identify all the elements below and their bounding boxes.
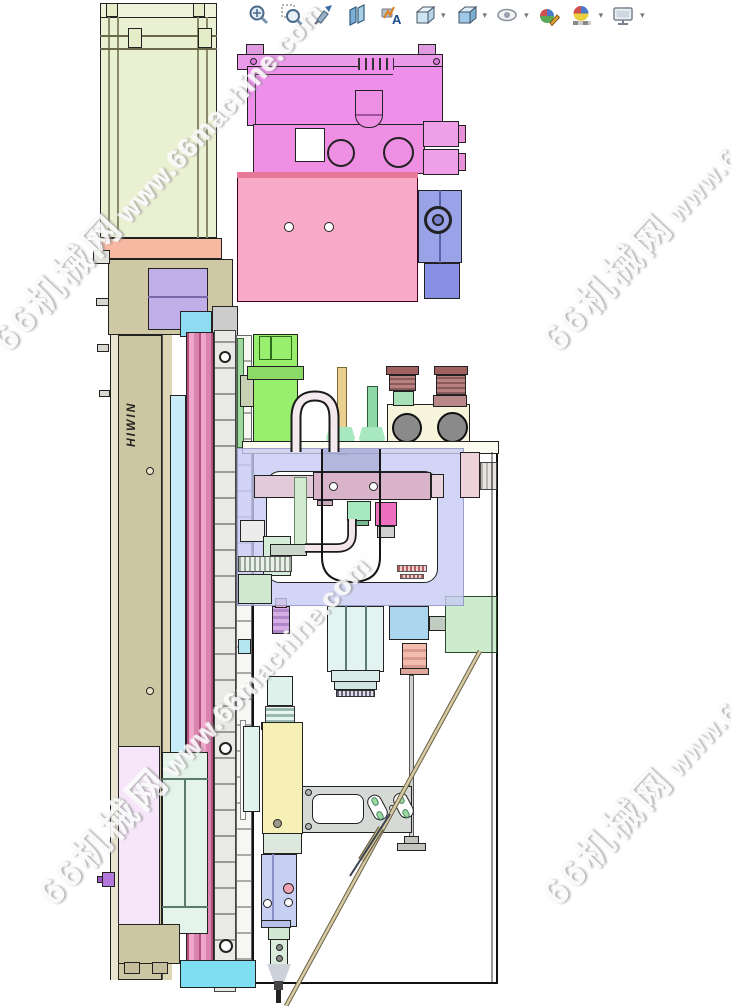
edit-appearance-icon[interactable] bbox=[536, 2, 562, 28]
slide-hole bbox=[284, 898, 293, 907]
hide-show-items-dropdown-caret[interactable]: ▾ bbox=[524, 2, 529, 28]
cyan-actuator-cylinder[interactable] bbox=[327, 606, 384, 672]
manifold-bore bbox=[437, 412, 468, 443]
base-foot bbox=[152, 962, 168, 974]
plate-hole bbox=[284, 222, 294, 232]
chain-pin-hole bbox=[219, 742, 232, 755]
cad-application-window: A ▾ ▾ ▾ ▾ ▾ bbox=[0, 0, 731, 1006]
cyan-cyl-hatch bbox=[336, 690, 375, 697]
bracket-pin-hole bbox=[389, 805, 395, 811]
brown-fitting-cap[interactable] bbox=[386, 366, 419, 375]
section-view-icon[interactable] bbox=[345, 2, 371, 28]
motor-edge-line bbox=[206, 17, 208, 238]
view-settings-icon[interactable] bbox=[610, 2, 636, 28]
brown-fitting-cap[interactable] bbox=[434, 366, 468, 375]
selection-dark-band bbox=[322, 449, 381, 473]
cable-chain-strip[interactable] bbox=[214, 330, 236, 992]
syringe-cap-split bbox=[259, 336, 292, 360]
violet-screw bbox=[433, 58, 440, 65]
slide-pink-plug bbox=[283, 883, 294, 894]
motor-cap-notch bbox=[193, 3, 205, 17]
rail-cyan-strip[interactable] bbox=[170, 395, 186, 765]
rail-bolt bbox=[146, 687, 154, 695]
salmon-fitting[interactable] bbox=[402, 643, 427, 669]
manifold-hole bbox=[369, 482, 378, 491]
display-style-dropdown-caret[interactable]: ▾ bbox=[483, 2, 488, 28]
motor-flange-plate[interactable] bbox=[100, 238, 222, 259]
label-hatch-red bbox=[400, 574, 424, 579]
coupling-step-line bbox=[148, 296, 208, 298]
display-style-icon[interactable] bbox=[453, 2, 479, 28]
valve-knob-inner bbox=[432, 214, 444, 226]
base-foot bbox=[124, 962, 140, 974]
inner-magenta-fitting[interactable] bbox=[375, 502, 397, 526]
left-stub bbox=[99, 390, 110, 397]
blue-valve-bracket[interactable] bbox=[424, 263, 460, 299]
plate-hole bbox=[324, 222, 334, 232]
rail-bolt bbox=[146, 467, 154, 475]
view-orientation-dropdown-caret[interactable]: ▾ bbox=[441, 2, 446, 28]
left-green-block2 bbox=[238, 574, 272, 604]
motor-edge-line bbox=[197, 17, 199, 238]
heads-up-view-toolbar: A ▾ ▾ ▾ ▾ ▾ bbox=[246, 1, 645, 29]
left-stub bbox=[97, 344, 109, 352]
pink-side-cylinder-ribs bbox=[480, 462, 497, 490]
bottom-cyan-block[interactable] bbox=[180, 960, 256, 988]
bracket-cutout bbox=[312, 794, 364, 824]
label-hatch-red bbox=[397, 565, 427, 572]
left-gray-block bbox=[240, 520, 265, 542]
mauve-manifold-ext bbox=[431, 474, 444, 498]
adjust-knob-purple[interactable] bbox=[102, 872, 115, 887]
pink-mount-plate[interactable] bbox=[237, 172, 418, 302]
carriage-green-line bbox=[162, 906, 208, 908]
carriage-green-line bbox=[184, 778, 186, 906]
salmon-washer bbox=[400, 668, 429, 675]
base-tan-block[interactable] bbox=[118, 924, 180, 964]
blue-square-block[interactable] bbox=[389, 606, 429, 640]
violet-bore bbox=[383, 137, 414, 168]
motor-edge-line bbox=[108, 17, 110, 238]
violet-side-fitting[interactable] bbox=[423, 121, 459, 147]
previous-view-icon[interactable] bbox=[312, 2, 338, 28]
violet-bore bbox=[327, 139, 355, 167]
motor-band-line bbox=[100, 48, 217, 50]
violet-cylinder-port[interactable] bbox=[355, 90, 383, 128]
fitting-end-cap bbox=[458, 125, 466, 143]
view-orientation-icon[interactable] bbox=[411, 2, 437, 28]
view-settings-dropdown-caret[interactable]: ▾ bbox=[640, 2, 645, 28]
cyan-side-slab[interactable] bbox=[243, 726, 260, 812]
green-collar bbox=[393, 391, 414, 406]
hide-show-items-icon[interactable] bbox=[494, 2, 520, 28]
cyan-threaded-top[interactable] bbox=[267, 676, 293, 706]
yellow-dispense-valve[interactable] bbox=[262, 722, 303, 834]
pink-plate-top-strip bbox=[237, 172, 418, 178]
cyan-cyl-collar bbox=[334, 681, 377, 690]
motor-bolt-tab bbox=[198, 28, 212, 48]
bracket-screw bbox=[305, 789, 312, 796]
slide-vline bbox=[272, 854, 274, 927]
chain-pin-hole bbox=[219, 939, 233, 953]
inner-green-fitting[interactable] bbox=[347, 501, 371, 521]
nozzle-needle bbox=[276, 990, 281, 1003]
inner-gray-cap bbox=[377, 526, 395, 538]
nozzle-tip bbox=[274, 981, 283, 990]
cyl-vline bbox=[345, 606, 347, 672]
syringe-cap-line bbox=[270, 336, 272, 360]
motor-cap-notch bbox=[106, 3, 118, 17]
left-stub bbox=[93, 250, 110, 264]
apply-scene-dropdown-caret[interactable]: ▾ bbox=[599, 2, 604, 28]
small-cyan-tab bbox=[238, 639, 251, 654]
motor-edge-line bbox=[117, 17, 119, 238]
slide-top-cap bbox=[263, 833, 302, 854]
probe-foot bbox=[397, 843, 426, 851]
bracket-screw bbox=[305, 823, 312, 830]
brown-hex-base bbox=[433, 395, 467, 407]
motor-bolt-tab bbox=[128, 28, 142, 48]
purple-fitting-stack[interactable] bbox=[272, 606, 290, 634]
linear-bearing-hatch bbox=[238, 556, 292, 572]
fitting-end-cap bbox=[458, 153, 466, 171]
brown-fitting-ribs bbox=[436, 375, 466, 395]
manifold-bore bbox=[392, 413, 422, 443]
brown-fitting-ribs bbox=[389, 375, 416, 391]
syringe-collar bbox=[247, 366, 304, 380]
carriage-pink-panel[interactable] bbox=[118, 746, 160, 938]
rail-brand-label: HIWIN bbox=[124, 402, 138, 447]
watermark: 66机械网 www.66machine.com bbox=[527, 538, 731, 906]
manifold-hole bbox=[329, 482, 338, 491]
annotation-views-icon[interactable]: A bbox=[378, 2, 404, 28]
svg-text:A: A bbox=[392, 12, 402, 27]
holder-screw bbox=[276, 955, 283, 962]
violet-vent-ticks bbox=[358, 58, 394, 70]
left-stub bbox=[96, 298, 109, 306]
adjust-knob-stem bbox=[97, 876, 103, 883]
valve-screw bbox=[273, 819, 282, 828]
violet-square-port bbox=[295, 128, 325, 162]
apply-scene-icon[interactable] bbox=[569, 2, 595, 28]
chain-pin-hole bbox=[219, 351, 231, 363]
violet-screw bbox=[250, 58, 257, 65]
watermark: 66机械网 www.66machine.com bbox=[527, 0, 731, 352]
cylinder-ring-line bbox=[356, 114, 382, 116]
pink-side-cylinder[interactable] bbox=[460, 452, 480, 498]
holder-screw bbox=[276, 944, 283, 951]
violet-side-fitting[interactable] bbox=[423, 149, 459, 175]
slide-hole bbox=[263, 899, 272, 908]
cyl-vline bbox=[365, 606, 367, 672]
zoom-to-area-icon[interactable] bbox=[279, 2, 305, 28]
zoom-to-fit-icon[interactable] bbox=[246, 2, 272, 28]
inner-green-washer bbox=[349, 520, 369, 526]
tube-connector-block bbox=[270, 544, 307, 556]
manifold-tab bbox=[317, 500, 333, 506]
